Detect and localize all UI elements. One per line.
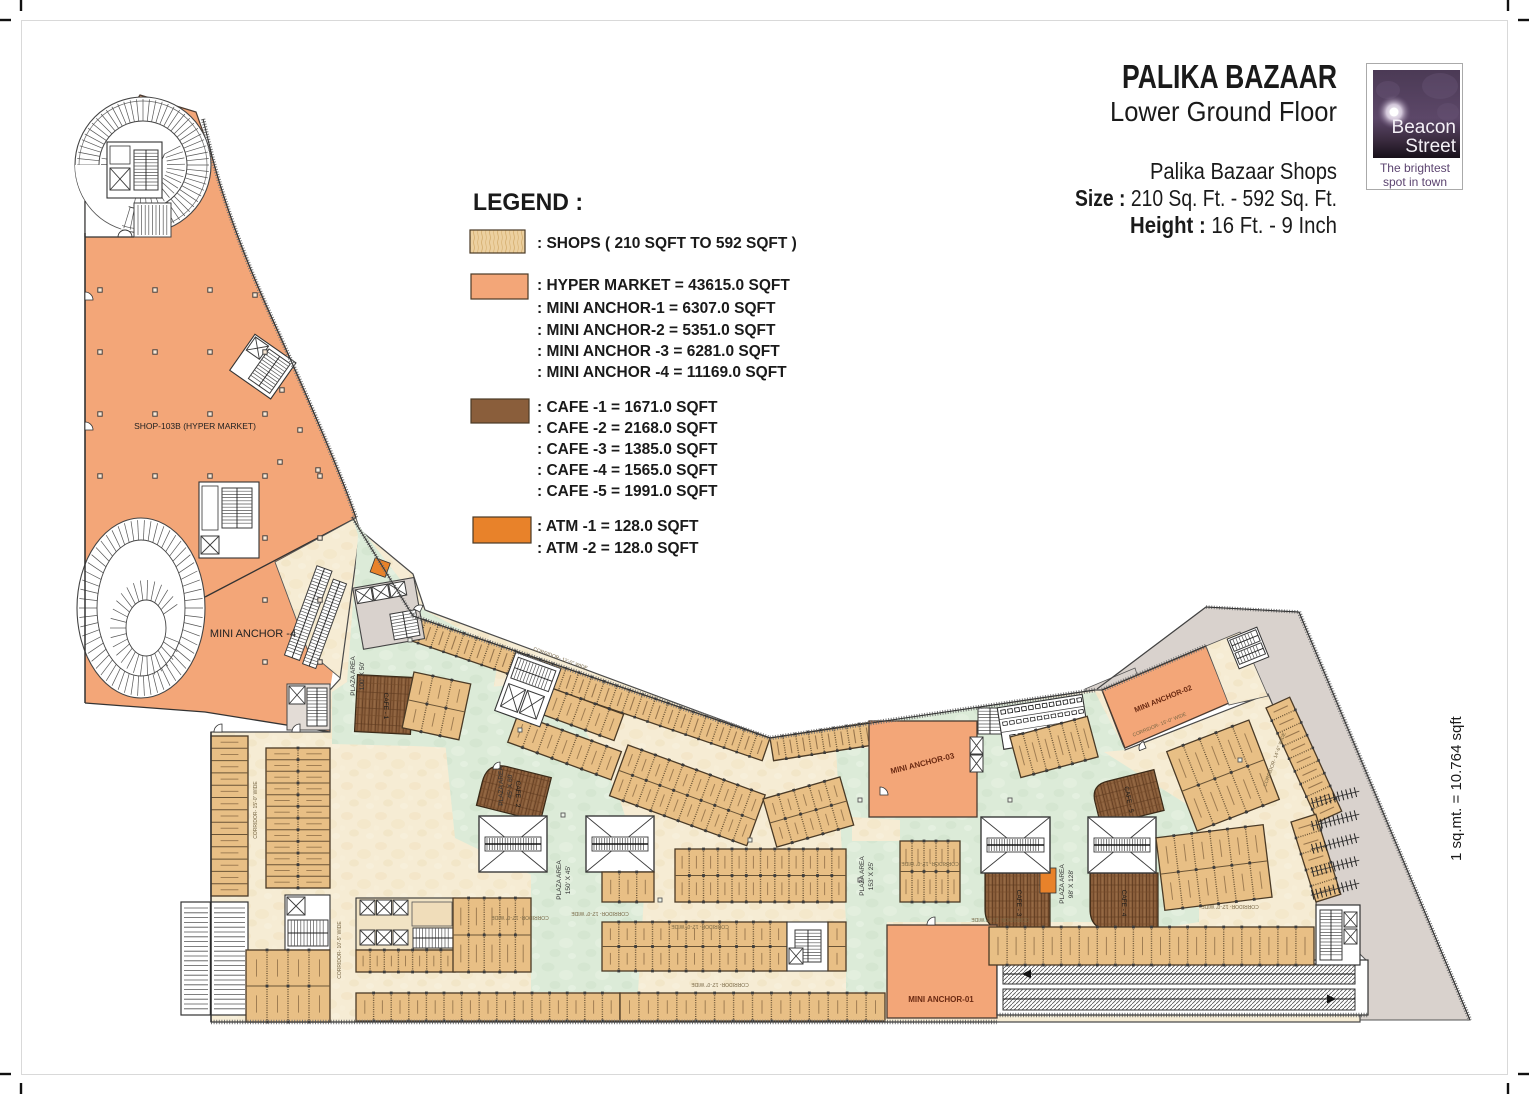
- svg-text:CAFE - 1: CAFE - 1: [382, 693, 389, 720]
- svg-text:CAFE - 2: CAFE - 2: [514, 781, 521, 808]
- svg-text:150' X 45': 150' X 45': [565, 866, 572, 895]
- svg-text:CORRIDOR- 12'-0" WIDE: CORRIDOR- 12'-0" WIDE: [571, 910, 629, 916]
- svg-text:CAFE - 3: CAFE - 3: [1015, 890, 1022, 917]
- svg-text:: HYPER MARKET = 43615.0 SQF: : HYPER MARKET = 43615.0 SQFT: [537, 277, 790, 294]
- svg-text:PLAZA AREA: PLAZA AREA: [1059, 864, 1066, 904]
- svg-text:Size : 210 Sq. Ft. - 592 Sq. F: Size : 210 Sq. Ft. - 592 Sq. Ft.: [1075, 185, 1337, 211]
- svg-text:100' X 50': 100' X 50': [359, 662, 366, 691]
- svg-text:: CAFE -5 = 1991.0 SQFT: : CAFE -5 = 1991.0 SQFT: [537, 483, 718, 500]
- svg-text:LEGEND :: LEGEND :: [473, 189, 583, 216]
- svg-text:45' X 60': 45' X 60': [507, 774, 514, 799]
- svg-text:CAFE - 4: CAFE - 4: [1120, 890, 1127, 917]
- svg-text:PLAZA AREA: PLAZA AREA: [350, 656, 357, 696]
- svg-text:: CAFE -4 = 1565.0 SQFT: : CAFE -4 = 1565.0 SQFT: [537, 462, 718, 479]
- svg-text:98' X 128': 98' X 128': [1068, 870, 1075, 899]
- svg-text:CORRIDOR- 15'-0" WIDE: CORRIDOR- 15'-0" WIDE: [971, 916, 1029, 922]
- svg-text:1 sq.mt. = 10.764 sqft: 1 sq.mt. = 10.764 sqft: [1448, 715, 1465, 861]
- svg-text:PLAZA AREA: PLAZA AREA: [556, 860, 563, 900]
- svg-text:: MINI ANCHOR -4 = 11169.0 SQ: : MINI ANCHOR -4 = 11169.0 SQFT: [537, 364, 787, 381]
- svg-text:Street: Street: [1405, 136, 1456, 157]
- svg-text:CORRIDOR- 12'-0" WIDE: CORRIDOR- 12'-0" WIDE: [1201, 903, 1259, 909]
- svg-text:: CAFE -3 = 1385.0 SQFT: : CAFE -3 = 1385.0 SQFT: [537, 441, 718, 458]
- svg-text:SHOP-103B (HYPER MARKET): SHOP-103B (HYPER MARKET): [134, 421, 256, 431]
- svg-text:: CAFE -1 = 1671.0 SQFT: : CAFE -1 = 1671.0 SQFT: [537, 399, 718, 416]
- svg-text:: MINI ANCHOR -3 = 6281.0 SQF: : MINI ANCHOR -3 = 6281.0 SQFT: [537, 343, 780, 360]
- svg-text:: SHOPS ( 210 SQFT TO 592: : SHOPS ( 210 SQFT TO 592 SQFT ): [537, 235, 797, 252]
- svg-text:The brightest: The brightest: [1380, 161, 1451, 175]
- svg-text:CORRIDOR- 10'-5" WIDE: CORRIDOR- 10'-5" WIDE: [337, 921, 343, 979]
- svg-text:PALIKA BAZAAR: PALIKA BAZAAR: [1122, 58, 1337, 95]
- svg-text:Beacon: Beacon: [1392, 117, 1456, 138]
- svg-text:CORRIDOR- 12'-0" WIDE: CORRIDOR- 12'-0" WIDE: [491, 914, 549, 920]
- svg-text:PLAZA AREA: PLAZA AREA: [859, 856, 866, 896]
- svg-text:Palika Bazaar Shops: Palika Bazaar Shops: [1150, 158, 1337, 184]
- svg-text:MINI ANCHOR -4: MINI ANCHOR -4: [210, 628, 296, 640]
- svg-text:153' X 25': 153' X 25': [868, 862, 875, 891]
- svg-text:: ATM -1 = 128.0 SQFT: : ATM -1 = 128.0 SQFT: [537, 518, 699, 535]
- svg-text:spot in town: spot in town: [1383, 175, 1447, 189]
- svg-text:CORRIDOR- 15'-0" WIDE: CORRIDOR- 15'-0" WIDE: [253, 781, 259, 839]
- svg-text:: MINI ANCHOR-1 = 6307.0 SQFT: : MINI ANCHOR-1 = 6307.0 SQFT: [537, 300, 776, 317]
- svg-text:CORRIDOR- 12'-0" WIDE: CORRIDOR- 12'-0" WIDE: [671, 923, 729, 929]
- svg-text:MINI ANCHOR-01: MINI ANCHOR-01: [908, 995, 974, 1004]
- svg-text:CORRIDOR- 12'-0" WIDE: CORRIDOR- 12'-0" WIDE: [901, 860, 959, 866]
- svg-text:: MINI ANCHOR-2 = 5351.0 SQFT: : MINI ANCHOR-2 = 5351.0 SQFT: [537, 322, 776, 339]
- svg-text:Height : 16 Ft. - 9 Inch: Height : 16 Ft. - 9 Inch: [1130, 212, 1337, 238]
- svg-text:Lower Ground Floor: Lower Ground Floor: [1110, 96, 1337, 127]
- svg-text:PLAZA AREA: PLAZA AREA: [498, 766, 505, 806]
- svg-text:CORRIDOR- 12'-0" WIDE: CORRIDOR- 12'-0" WIDE: [691, 981, 749, 987]
- svg-text:: CAFE -2 = 2168.0 SQFT: : CAFE -2 = 2168.0 SQFT: [537, 420, 718, 437]
- svg-text:: ATM -2 = 128.0 SQFT: : ATM -2 = 128.0 SQFT: [537, 540, 699, 557]
